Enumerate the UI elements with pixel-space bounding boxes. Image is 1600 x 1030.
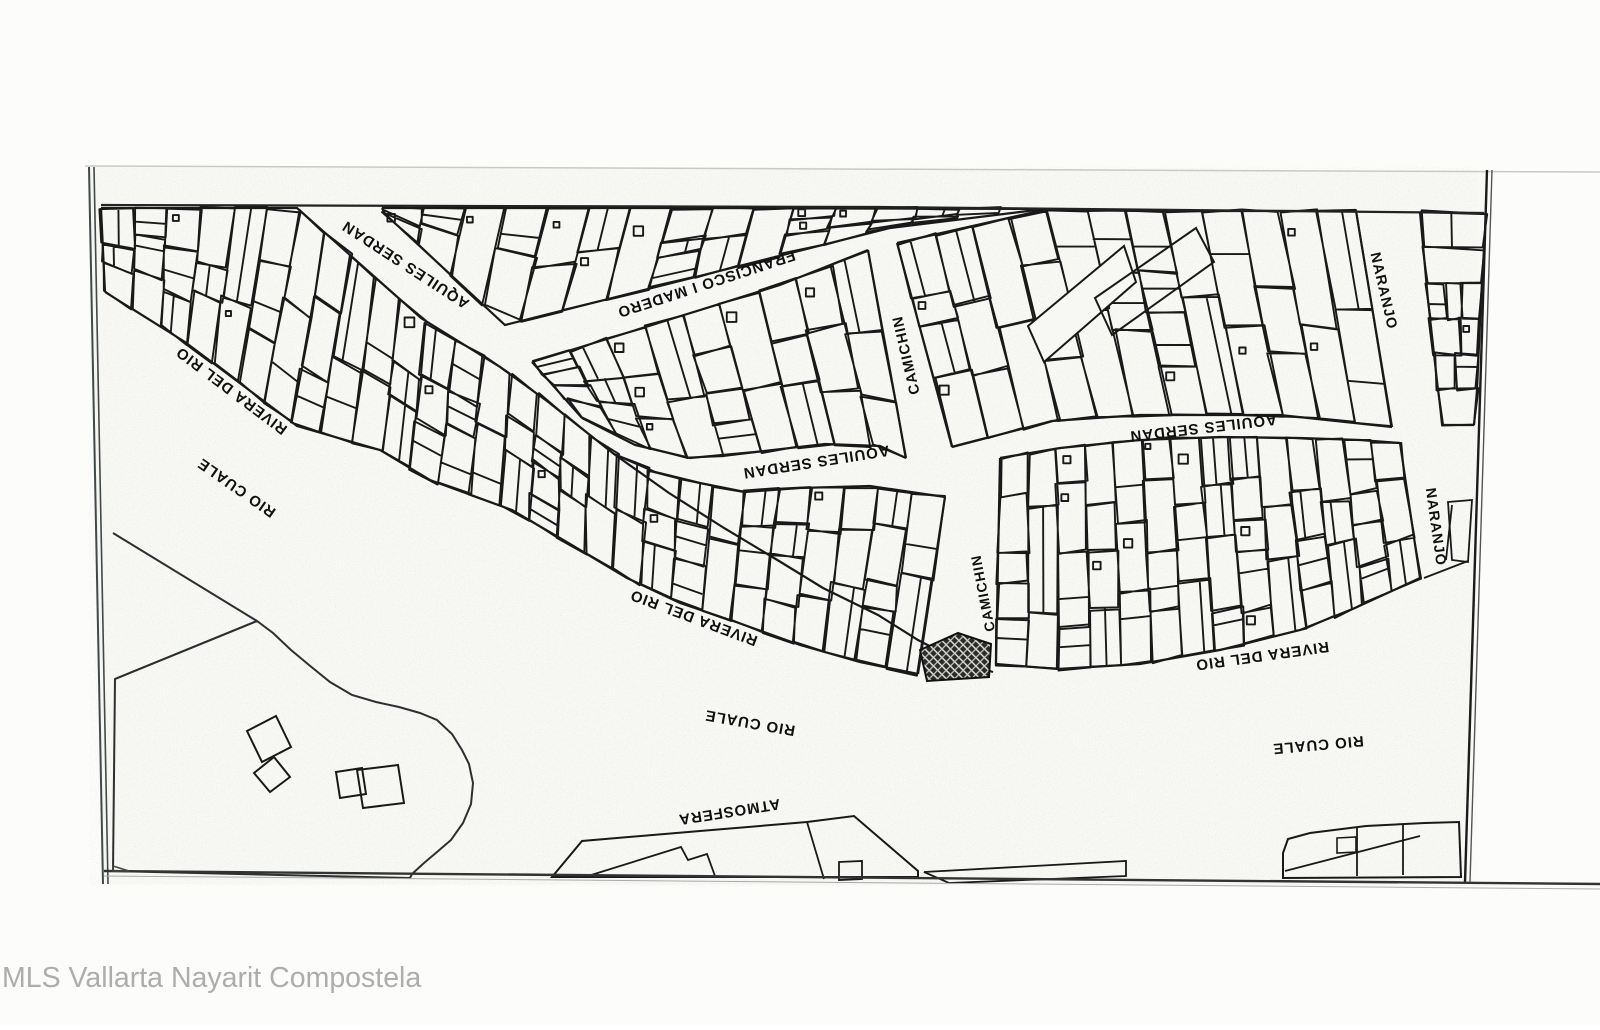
- svg-text:MLS Vallarta Nayarit Compostel: MLS Vallarta Nayarit Compostela: [2, 962, 421, 994]
